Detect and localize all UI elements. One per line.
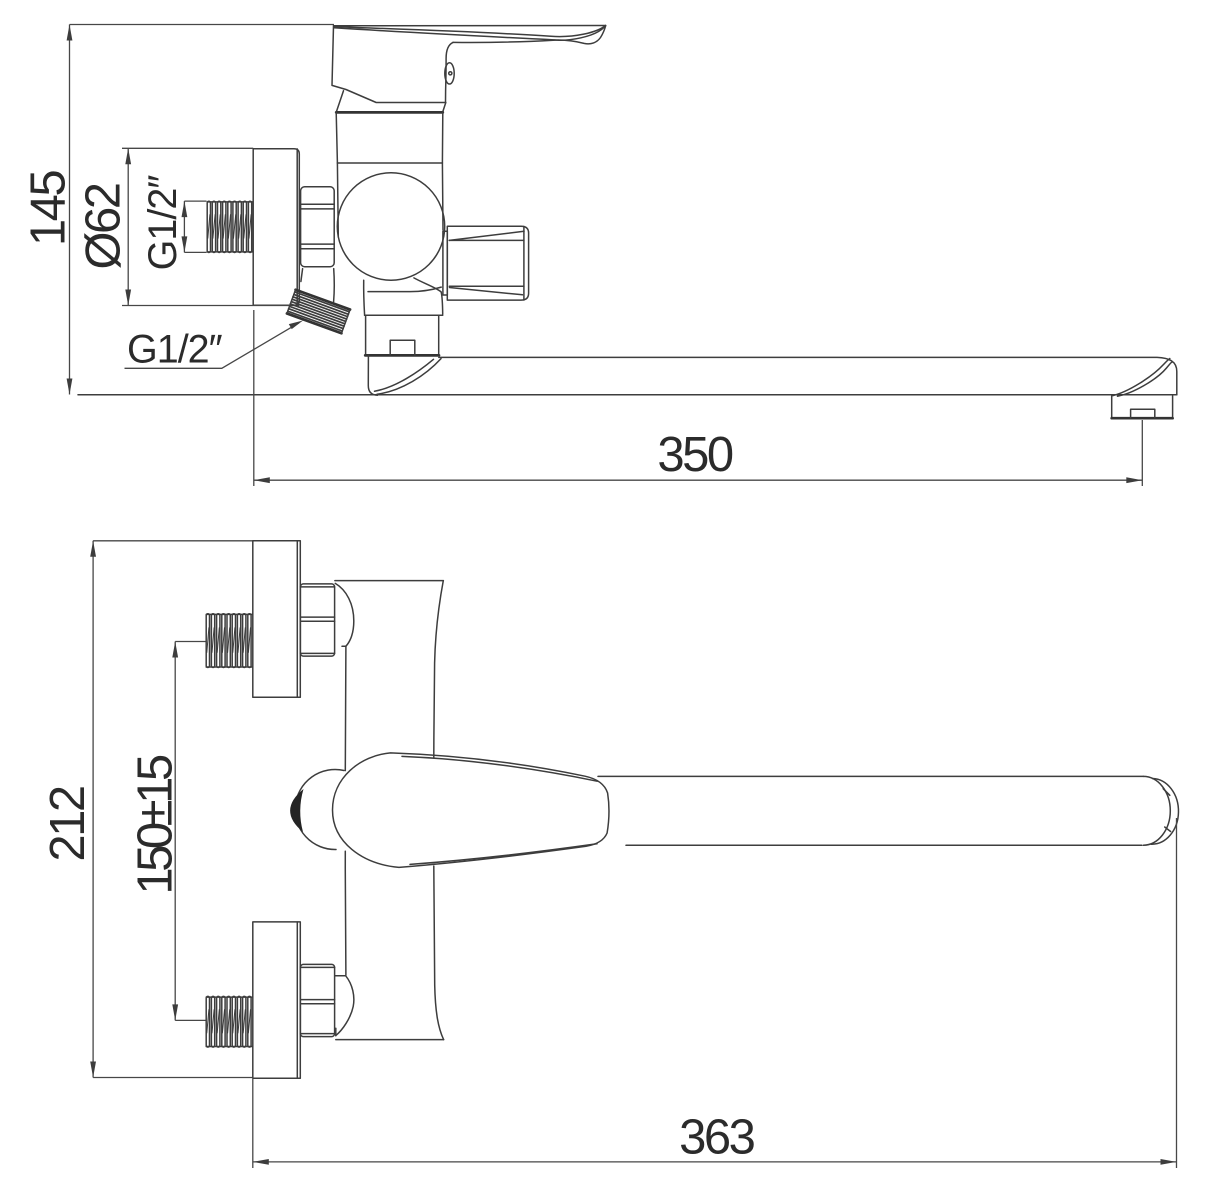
svg-text:150±15: 150±15: [129, 755, 183, 894]
svg-text:363: 363: [679, 1111, 755, 1165]
svg-text:G1/2″: G1/2″: [127, 328, 223, 372]
svg-text:Ø62: Ø62: [77, 184, 131, 269]
svg-text:G1/2″: G1/2″: [141, 175, 185, 271]
svg-text:350: 350: [657, 428, 733, 482]
svg-text:212: 212: [41, 787, 95, 862]
svg-text:145: 145: [22, 171, 76, 247]
